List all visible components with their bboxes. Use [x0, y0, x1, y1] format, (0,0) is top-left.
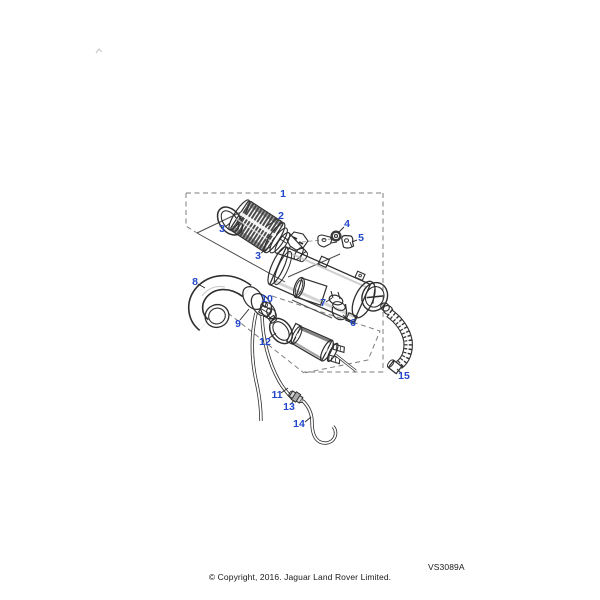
- exploded-parts-drawing: 1233456789101112131415: [0, 0, 600, 600]
- part-callout-11[interactable]: 11: [271, 389, 282, 401]
- fork-bracket-drawing: [325, 342, 363, 374]
- drain-tube-drawing: [303, 401, 336, 443]
- copyright-line: © Copyright, 2016. Jaguar Land Rover Lim…: [0, 572, 600, 582]
- diagram-code: VS3089A: [428, 562, 465, 572]
- callout-layer: 1233456789101112131415: [192, 188, 410, 430]
- ribbed-element-drawing: [226, 198, 316, 273]
- part-callout-2[interactable]: 2: [278, 210, 284, 222]
- washer-drawing: [332, 232, 341, 241]
- part-callout-4[interactable]: 4: [344, 218, 350, 230]
- part-callout-8[interactable]: 8: [192, 276, 198, 288]
- clip-drawing: [342, 236, 354, 249]
- part-callout-1[interactable]: 1: [280, 188, 286, 200]
- part-callout-9[interactable]: 9: [235, 318, 241, 330]
- end-cap-drawing: [357, 278, 392, 315]
- hose-mouth-drawing: [201, 301, 232, 331]
- part-callout-14[interactable]: 14: [293, 418, 305, 430]
- part-callout-15[interactable]: 15: [398, 370, 410, 382]
- parts-diagram-page: 1233456789101112131415 VS3089A © Copyrig…: [0, 0, 600, 600]
- part-callout-13[interactable]: 13: [283, 401, 295, 413]
- part-callout-3[interactable]: 3: [255, 250, 261, 262]
- part-callout-6[interactable]: 6: [350, 317, 356, 329]
- part-callout-12[interactable]: 12: [259, 336, 271, 348]
- main-pipe-drawing: [263, 238, 392, 332]
- part-callout-5[interactable]: 5: [358, 232, 364, 244]
- part-callout-3[interactable]: 3: [219, 223, 225, 235]
- stray-mark: [96, 49, 102, 53]
- part-callout-7[interactable]: 7: [320, 297, 326, 309]
- part-callout-10[interactable]: 10: [261, 293, 273, 305]
